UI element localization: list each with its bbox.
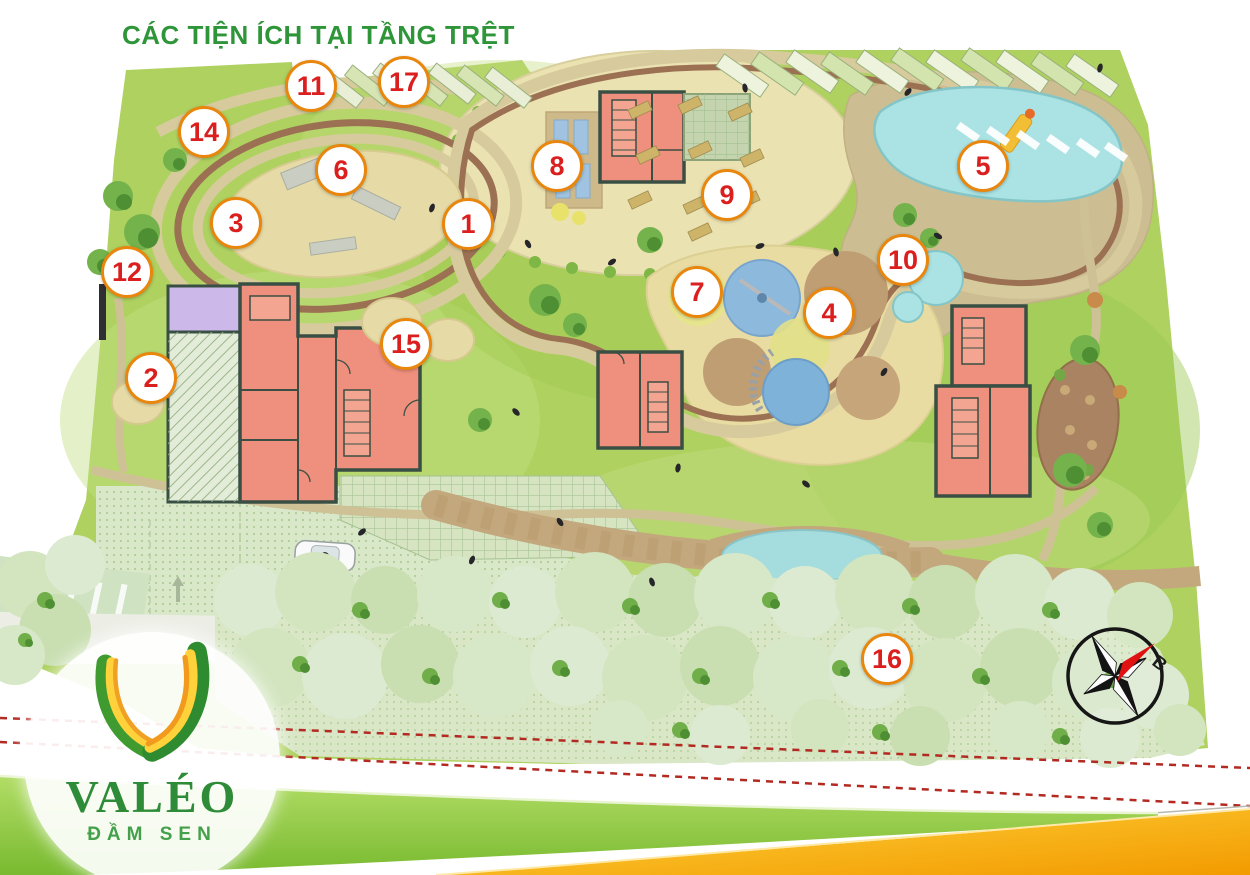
amenity-marker-14: 14: [178, 106, 230, 158]
amenity-marker-16: 16: [861, 633, 913, 685]
amenity-marker-8: 8: [531, 140, 583, 192]
amenity-marker-15: 15: [380, 318, 432, 370]
logo-v-swoosh-icon: [77, 632, 227, 782]
amenity-marker-5: 5: [957, 140, 1009, 192]
amenity-marker-10: 10: [877, 234, 929, 286]
logo-subtitle: ĐẦM SEN: [87, 824, 217, 846]
amenity-marker-1: 1: [442, 198, 494, 250]
project-logo: VALÉO ĐẦM SEN: [24, 632, 280, 875]
site-plan-page: B CÁC TIỆN ÍCH TẠI TẦNG TRỆT 12345678910…: [0, 0, 1250, 875]
amenity-marker-2: 2: [125, 352, 177, 404]
amenity-marker-7: 7: [671, 266, 723, 318]
amenity-marker-9: 9: [701, 169, 753, 221]
amenity-marker-4: 4: [803, 287, 855, 339]
amenity-marker-3: 3: [210, 197, 262, 249]
amenity-marker-6: 6: [315, 144, 367, 196]
amenity-marker-11: 11: [285, 60, 337, 112]
logo-brand-name: VALÉO: [66, 774, 239, 820]
amenity-marker-17: 17: [378, 56, 430, 108]
amenity-marker-12: 12: [101, 246, 153, 298]
